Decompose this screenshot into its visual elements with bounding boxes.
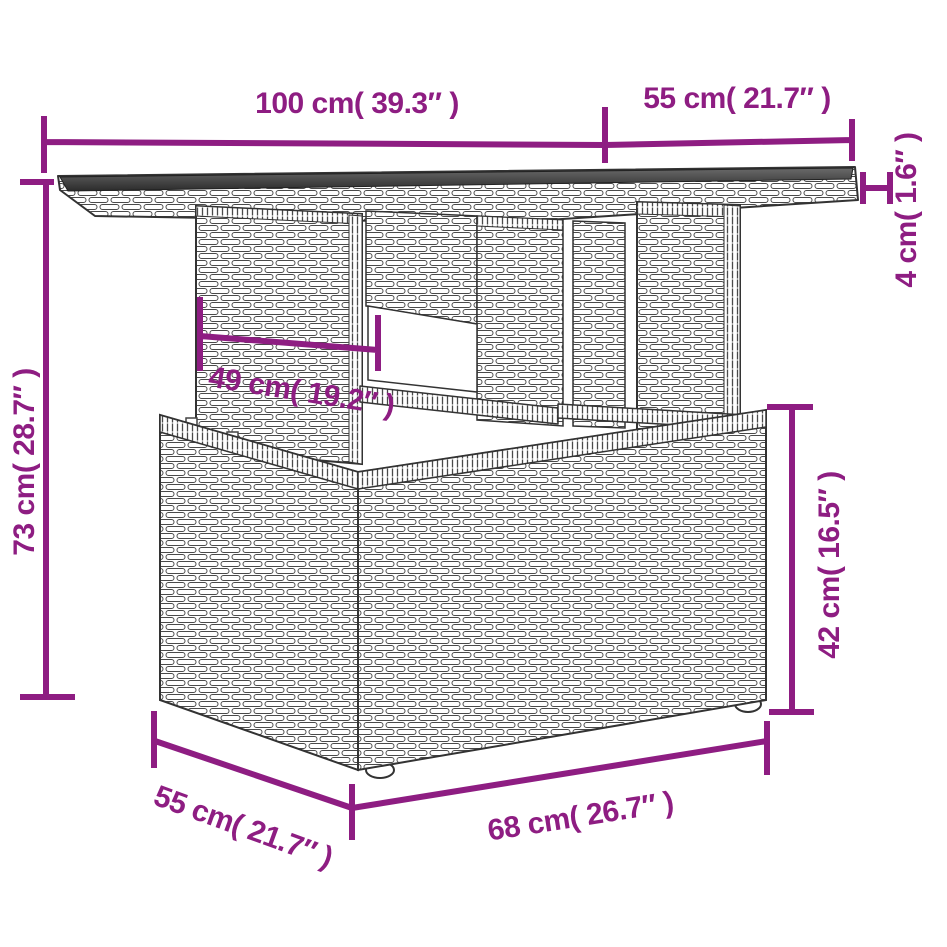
pedestal-back-strip <box>366 211 477 324</box>
dim-top-thickness-bracket <box>863 172 890 204</box>
dim-top-depth-label: 55 cm( 21.7″ ) <box>643 82 830 115</box>
dim-total-height-label: 73 cm( 28.7″ ) <box>8 368 41 555</box>
pedestal-middle-column <box>477 216 563 426</box>
dim-base-height-line <box>767 407 814 712</box>
pedestal-right-panel-edge-roll <box>724 205 740 442</box>
dim-total-height: 73 cm( 28.7″ ) <box>8 182 75 697</box>
diagram-canvas: 100 cm( 39.3″ ) 55 cm( 21.7″ ) 4 cm( 1.6… <box>0 0 947 947</box>
dim-base-width-label: 68 cm( 26.7″ ) <box>485 786 675 848</box>
dim-top-length-label: 100 cm( 39.3″ ) <box>255 87 459 120</box>
pedestal-front-panel-edge-roll <box>349 215 362 464</box>
dim-top-depth-line <box>605 119 852 161</box>
dim-top-depth: 55 cm( 21.7″ ) <box>605 82 852 161</box>
table-base-box <box>160 410 766 778</box>
dim-top-thickness-label: 4 cm( 1.6″ ) <box>890 132 923 287</box>
table-drawing <box>58 167 858 778</box>
dimension-diagram: 100 cm( 39.3″ ) 55 cm( 21.7″ ) 4 cm( 1.6… <box>0 0 947 947</box>
dim-top-thickness: 4 cm( 1.6″ ) <box>863 132 923 287</box>
dim-top-length: 100 cm( 39.3″ ) <box>44 87 605 173</box>
dim-base-height-label: 42 cm( 16.5″ ) <box>813 471 846 658</box>
pedestal-back-column <box>573 221 625 428</box>
dim-base-height: 42 cm( 16.5″ ) <box>767 407 846 712</box>
